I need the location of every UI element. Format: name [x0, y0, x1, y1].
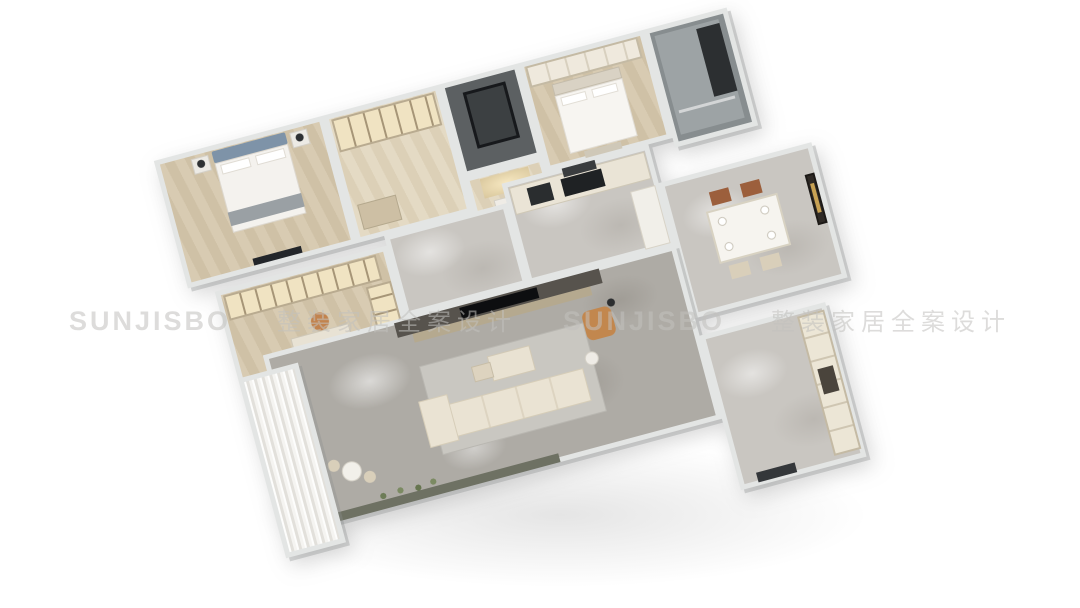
shower-glass-frame [463, 81, 521, 148]
pantry-doorway [756, 462, 797, 482]
dining-art-frame [805, 172, 828, 225]
art-frame-gold-inset [810, 183, 822, 213]
dining-chair-south-2 [759, 252, 782, 271]
floorplan-render: SUNJISBO 整装家居全案设计 SUNJISBO 整装家居全案设计 [0, 0, 1080, 608]
armchair-tan [581, 305, 618, 342]
tea-chair-2 [363, 469, 378, 484]
room-pantry-wing [700, 302, 867, 490]
master-tv [252, 246, 302, 266]
dining-chair-north-1 [709, 187, 732, 206]
floor-lamp [606, 298, 616, 308]
tea-chair-1 [326, 458, 341, 473]
dining-chair-north-2 [740, 179, 763, 198]
closet-wardrobe-row [331, 92, 442, 152]
closet-dresser [357, 195, 402, 230]
round-tea-table [340, 459, 364, 483]
dining-chair-south-1 [729, 261, 752, 280]
